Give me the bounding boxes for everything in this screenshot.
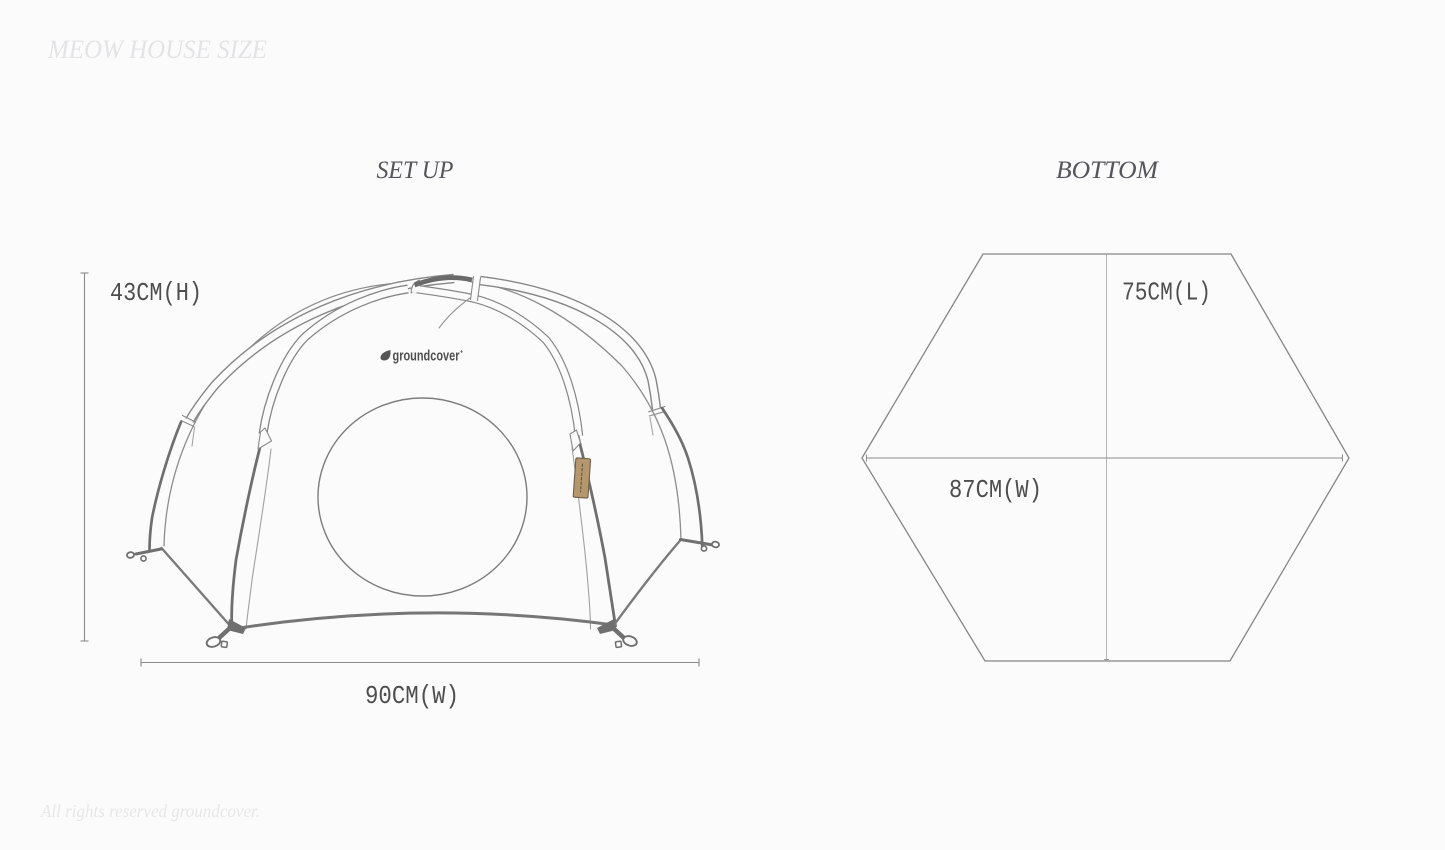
svg-text:87CM(W): 87CM(W) bbox=[949, 476, 1042, 505]
svg-text:BOTTOM: BOTTOM bbox=[1056, 157, 1159, 184]
svg-text:All rights reserved groundcove: All rights reserved groundcover. bbox=[40, 801, 260, 821]
svg-text:90CM(W): 90CM(W) bbox=[365, 682, 459, 711]
svg-text:+: + bbox=[460, 350, 463, 356]
svg-text:43CM(H): 43CM(H) bbox=[110, 279, 202, 308]
svg-text:75CM(L): 75CM(L) bbox=[1122, 279, 1211, 308]
svg-text:MEOW HOUSE SIZE: MEOW HOUSE SIZE bbox=[47, 35, 267, 64]
svg-text:SET UP: SET UP bbox=[377, 157, 454, 184]
svg-text:groundcover: groundcover bbox=[393, 348, 460, 364]
